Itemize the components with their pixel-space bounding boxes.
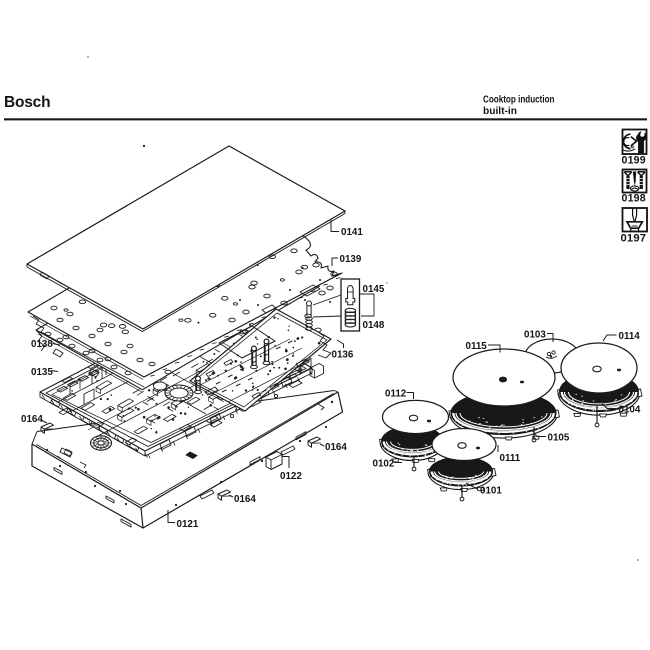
svg-text:Cooktop induction: Cooktop induction [483,95,555,106]
svg-text:0121: 0121 [177,519,199,530]
svg-text:0197: 0197 [621,233,647,245]
svg-text:0103: 0103 [524,330,546,341]
svg-text:0138: 0138 [31,339,53,350]
svg-text:0141: 0141 [341,227,363,238]
svg-text:0164: 0164 [325,442,347,453]
svg-text:0139: 0139 [340,254,362,265]
svg-text:0145: 0145 [363,284,385,295]
svg-text:0122: 0122 [280,471,302,482]
svg-text:0102: 0102 [373,459,395,470]
svg-text:0105: 0105 [548,433,570,444]
svg-text:0198: 0198 [622,193,646,205]
svg-text:0104: 0104 [619,405,641,416]
svg-text:0112: 0112 [385,389,407,400]
svg-text:0101: 0101 [480,486,502,497]
svg-text:0115: 0115 [466,341,488,352]
svg-text:0135: 0135 [31,367,53,378]
svg-text:0199: 0199 [622,155,646,167]
svg-text:0114: 0114 [619,331,641,342]
svg-text:built-in: built-in [483,106,517,117]
svg-text:0164: 0164 [21,414,43,425]
svg-text:0111: 0111 [500,453,521,464]
svg-text:0148: 0148 [363,320,385,331]
svg-text:0136: 0136 [332,350,354,361]
svg-text:Bosch: Bosch [4,94,50,111]
svg-text:0164: 0164 [234,494,256,505]
